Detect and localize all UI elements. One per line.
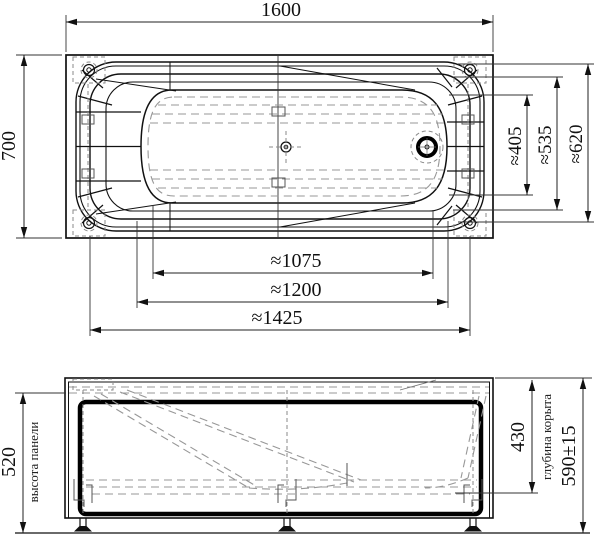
dim-panel-height: 520 — [0, 447, 20, 477]
dim-width-overall: 700 — [0, 131, 20, 161]
dim-length-bowl-bottom: ≈1075 — [271, 250, 322, 272]
dim-width-shell: ≈620 — [566, 125, 587, 164]
dim-length-overall: 1600 — [261, 0, 301, 21]
dim-width-bowl-bottom: ≈405 — [505, 127, 526, 166]
dim-length-bowl-rim: ≈1200 — [271, 279, 322, 301]
dim-length-mounting-span: ≈1425 — [252, 307, 303, 329]
page: { "drawing": { "kind": "bathtub dimensio… — [0, 0, 600, 538]
caption-panel-height: высота панели — [26, 422, 41, 503]
dim-bowl-depth: 430 — [507, 422, 529, 452]
dim-overall-height: 590±15 — [558, 426, 580, 487]
technical-drawing: 1600 700 ≈405 ≈535 — [0, 0, 600, 538]
caption-bowl-depth: глубина корыта — [539, 394, 554, 480]
dim-width-bowl-rim: ≈535 — [535, 126, 556, 165]
